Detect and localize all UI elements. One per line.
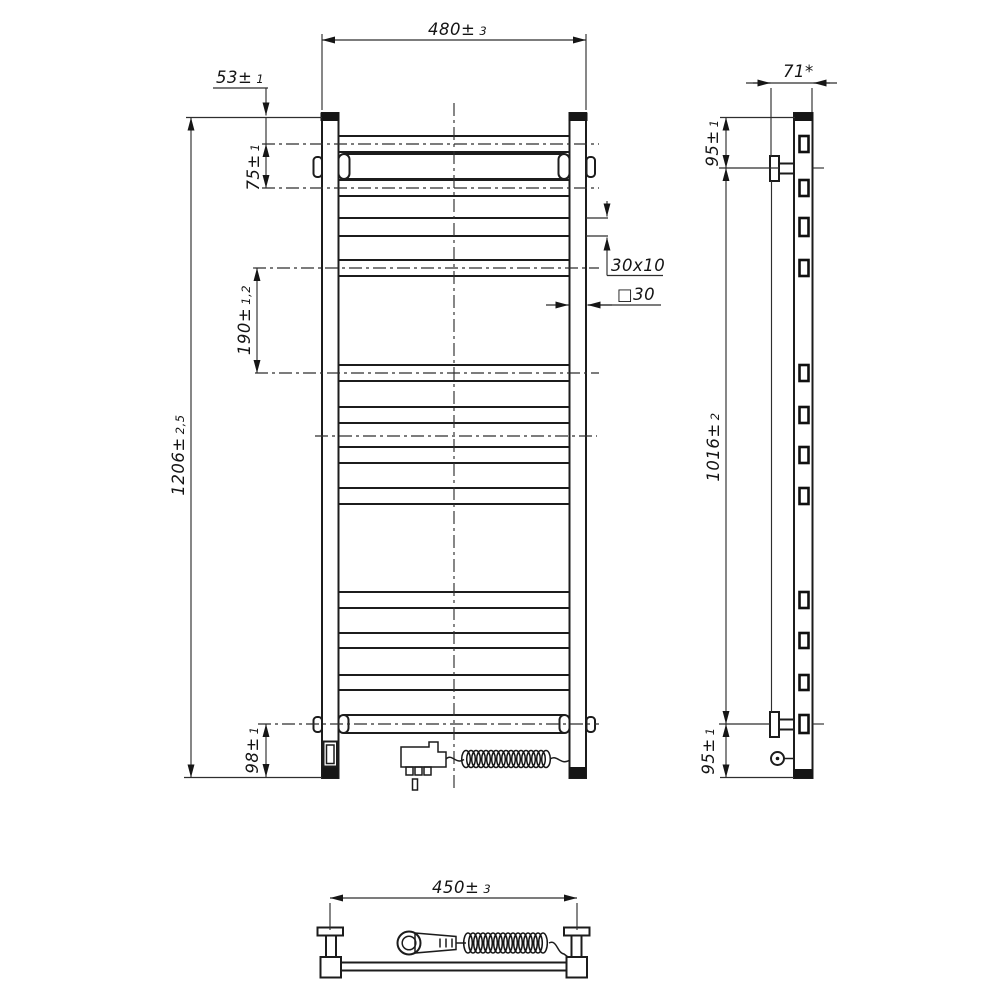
front-right-post-bottom-cap	[569, 767, 586, 778]
dim-bracket-width: 450±3	[432, 878, 491, 897]
drawing-sheet: 480±3 53±1 75±1 1206±2,5 190±1,2 98±1 30…	[0, 0, 1000, 1000]
front-right-post-top-cap	[569, 113, 588, 122]
dim-side-bottom: 95±1	[699, 727, 718, 774]
dim-mid-pitch: 190±1,2	[235, 285, 254, 355]
bottom-view	[318, 928, 590, 978]
front-left-post	[322, 113, 339, 778]
side-post-bottom-cap	[794, 769, 814, 778]
dim-depth: 71*	[783, 62, 814, 81]
dim-top-pitch: 75±1	[244, 143, 263, 190]
dim-bottom-offset: 98±1	[243, 726, 262, 773]
side-dimensions: 71* 95±1 1016±2 95±1	[699, 62, 837, 778]
front-left-post-top-cap	[321, 113, 340, 122]
cord-tail	[549, 942, 568, 957]
rung-slot	[800, 715, 809, 733]
rung-slot	[800, 407, 809, 423]
coiled-cord-bottom	[464, 933, 548, 953]
side-element-knob	[771, 752, 794, 765]
front-dimensions: 480±3 53±1 75±1 1206±2,5 190±1,2 98±1 30…	[169, 20, 665, 778]
plug-prong	[424, 767, 431, 775]
plug-body	[401, 742, 446, 767]
rung-slot	[800, 218, 809, 236]
dim-side-span: 1016±2	[704, 412, 723, 481]
technical-drawing-svg: 480±3 53±1 75±1 1206±2,5 190±1,2 98±1 30…	[0, 0, 1000, 1000]
rung-slot	[800, 180, 809, 196]
rung-slot	[800, 592, 809, 608]
rung-slot	[800, 136, 809, 152]
side-view	[770, 113, 824, 779]
dim-width-top: 480±3	[428, 20, 487, 39]
front-rungs	[253, 103, 599, 792]
side-bottom-bracket	[770, 712, 824, 737]
power-plug-bottom	[398, 932, 569, 958]
dim-side-top: 95±1	[703, 119, 722, 166]
dim-post-section: □30	[617, 285, 655, 304]
top-left-bracket-ear	[314, 157, 323, 177]
bottom-dimensions: 450±3	[330, 878, 577, 930]
plug-prong	[406, 767, 413, 775]
plug-prong	[415, 767, 422, 775]
side-post-top-cap	[794, 113, 814, 122]
rung-slot	[800, 260, 809, 276]
front-view	[253, 103, 599, 792]
bottom-left-bracket	[318, 928, 344, 978]
dim-top-offset: 53±1	[216, 68, 264, 87]
rung-slot	[800, 633, 809, 648]
power-plug-front	[401, 742, 570, 790]
coiled-cord-front	[462, 751, 551, 768]
bottom-right-bracket	[564, 928, 590, 978]
cord-tail	[550, 758, 570, 762]
dim-rung-section: 30x10	[611, 256, 665, 275]
dim-height: 1206±2,5	[169, 414, 188, 495]
front-right-post	[570, 113, 587, 778]
rung-slot	[800, 447, 809, 463]
plug-cap	[398, 932, 421, 955]
side-rung-slots	[800, 136, 809, 733]
top-right-bracket-ear	[587, 157, 596, 177]
rung-slot	[800, 488, 809, 504]
plug-pin	[413, 779, 418, 790]
front-left-post-bottom-cap	[323, 767, 339, 779]
rung-slot	[800, 675, 809, 690]
rung-slot	[800, 365, 809, 381]
